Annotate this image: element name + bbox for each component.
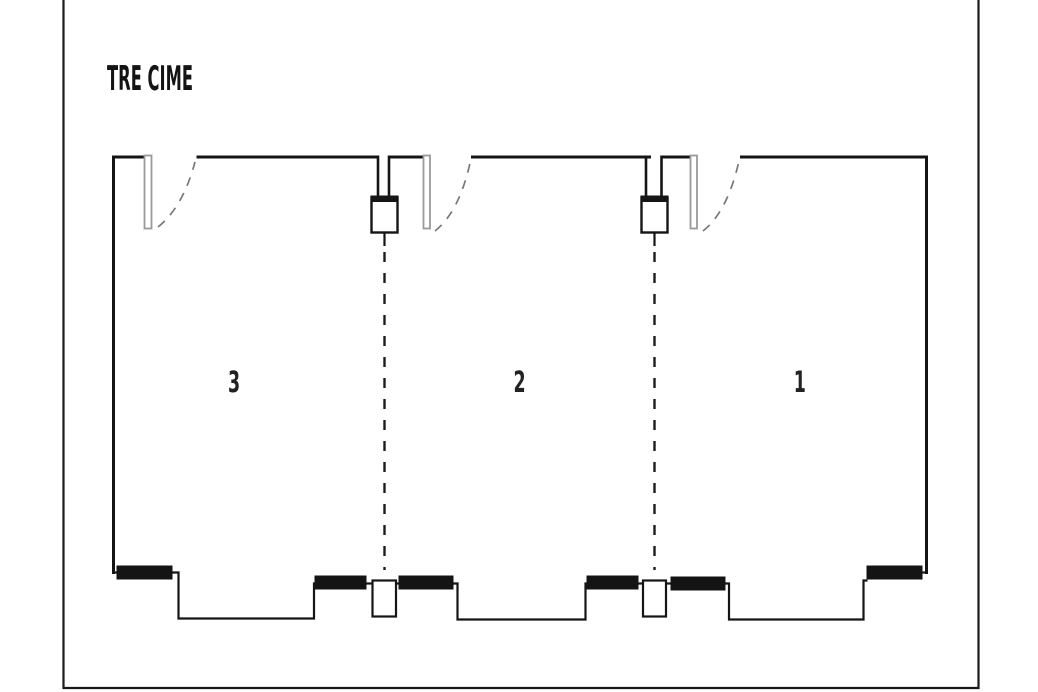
window-bar (587, 576, 638, 589)
plan-title: TRE CIME (107, 59, 193, 99)
window-bar (315, 576, 366, 589)
room-label-2: 2 (514, 365, 526, 399)
window-bar (117, 566, 172, 579)
partition-stack-cap (371, 196, 399, 203)
door-leaf (145, 156, 152, 229)
door-swing-arc (703, 163, 739, 231)
door-room-1 (691, 156, 739, 232)
bay-recess-room-2 (453, 584, 588, 620)
window-bar (867, 566, 922, 579)
floor-plan-page: TRE CIME (0, 0, 1038, 692)
room-label-3: 3 (228, 365, 240, 399)
partition-floor-pocket (373, 581, 397, 617)
door-room-2 (424, 156, 471, 232)
partition-floor-pocket (643, 581, 666, 617)
south-facade-windows (117, 566, 922, 590)
door-leaf (691, 156, 698, 229)
door-swing-arc (435, 163, 470, 231)
partition-stack-box (372, 198, 398, 233)
page-border (64, 0, 979, 688)
window-bar (671, 577, 725, 590)
window-bar (399, 576, 453, 589)
floor-plan-drawing: TRE CIME (0, 0, 1038, 692)
door-swing-arc (158, 162, 195, 227)
partition-track (646, 156, 662, 199)
movable-partition-rooms-3-2 (371, 156, 399, 617)
south-facade-bays (113, 573, 926, 620)
door-leaf (424, 156, 431, 229)
partition-track (378, 156, 389, 199)
partition-stack-box (642, 198, 668, 233)
bay-recess-room-1 (725, 581, 868, 620)
door-room-3 (145, 156, 196, 229)
room-labels: 3 2 1 (228, 365, 806, 399)
room-label-1: 1 (794, 365, 806, 399)
movable-partition-rooms-2-1 (641, 156, 669, 617)
bay-recess-room-3 (172, 573, 316, 619)
partition-stack-cap (641, 196, 669, 203)
